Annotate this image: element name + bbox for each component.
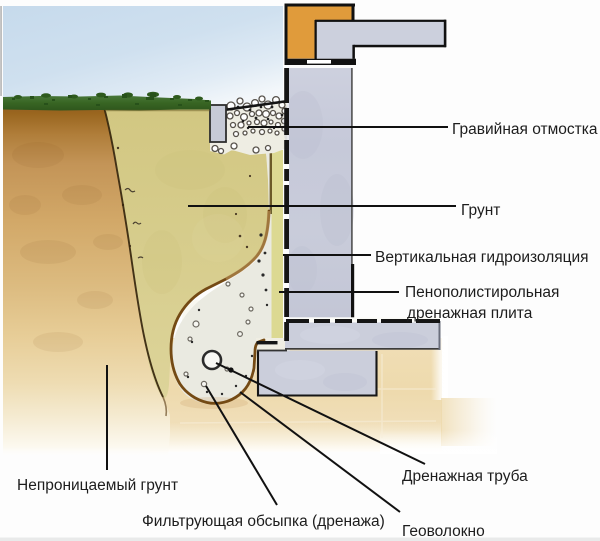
svg-text:Пенополистирольная: Пенополистирольная	[405, 284, 559, 301]
svg-text:Вертикальная гидроизоляция: Вертикальная гидроизоляция	[375, 249, 589, 266]
svg-text:Непроницаемый грунт: Непроницаемый грунт	[17, 477, 178, 494]
svg-text:дренажная плита: дренажная плита	[407, 305, 533, 322]
svg-text:Гравийная отмостка: Гравийная отмостка	[452, 121, 598, 138]
svg-text:Фильтрующая обсыпка (дренажа): Фильтрующая обсыпка (дренажа)	[142, 513, 385, 530]
svg-text:Геоволокно: Геоволокно	[402, 523, 485, 540]
svg-text:Грунт: Грунт	[461, 202, 500, 219]
svg-text:Дренажная труба: Дренажная труба	[402, 468, 528, 485]
